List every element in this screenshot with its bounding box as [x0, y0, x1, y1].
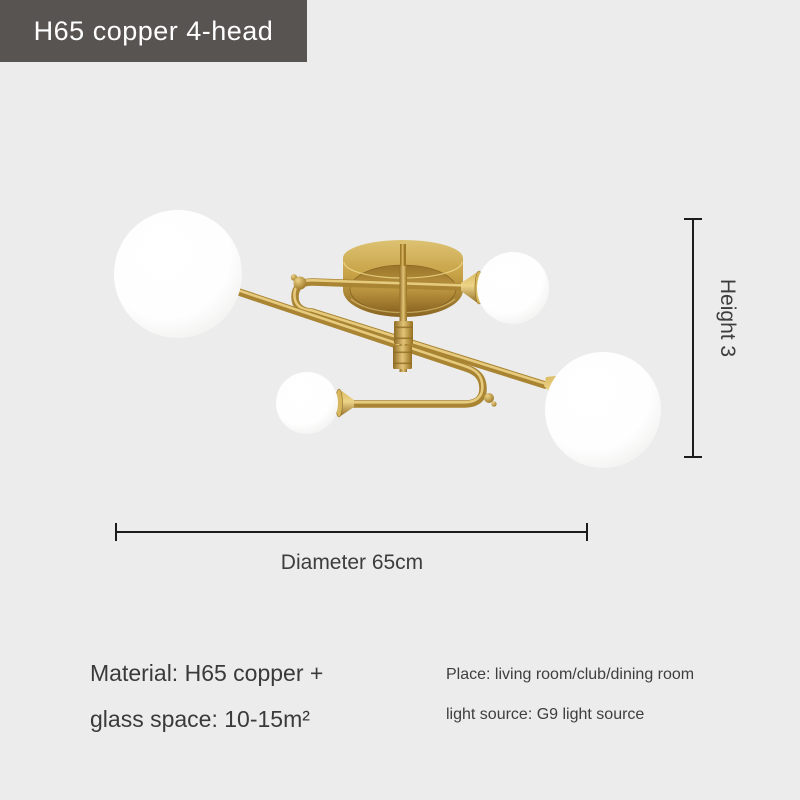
diameter-dimension-label: Diameter 65cm: [281, 551, 423, 575]
ceiling-lamp-illustration: [0, 0, 800, 620]
product-image: H65 copper 4-head: [0, 0, 800, 800]
material-specs: Material: H65 copper + glass space: 10-1…: [90, 650, 323, 742]
lamp-globe-2: [477, 252, 549, 324]
height-dimension-line: [684, 219, 702, 457]
lamp-globe-4: [545, 352, 661, 468]
lamp-globe-1: [114, 210, 242, 338]
material-spec-line-1: Material: H65 copper +: [90, 650, 323, 696]
lamp-globe-3: [276, 372, 338, 434]
light-source-spec-line: light source: G9 light source: [446, 695, 694, 735]
place-spec-line: Place: living room/club/dining room: [446, 655, 694, 695]
diameter-dimension-line: [116, 523, 587, 541]
usage-specs: Place: living room/club/dining room ligh…: [446, 655, 694, 735]
height-dimension-label: Height 3: [715, 279, 739, 357]
material-spec-line-2: glass space: 10-15m²: [90, 696, 323, 742]
